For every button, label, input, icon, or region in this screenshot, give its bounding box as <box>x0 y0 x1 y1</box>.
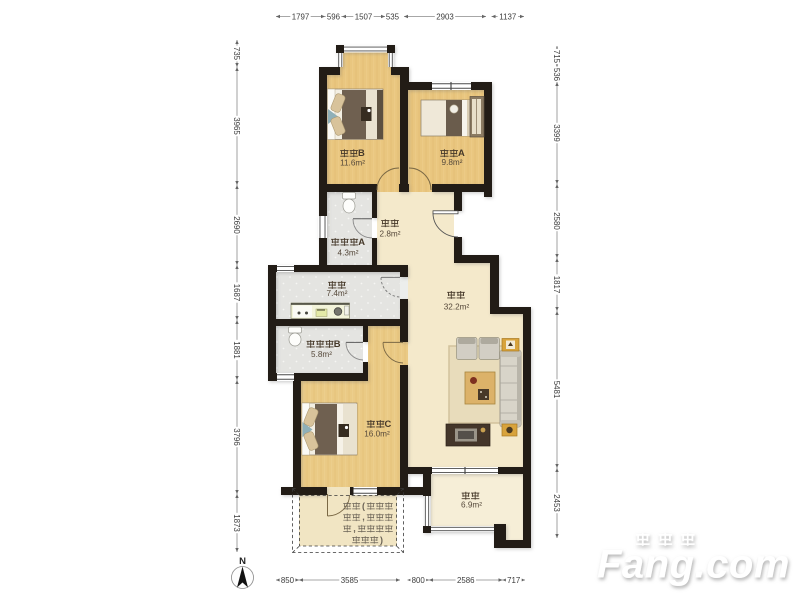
svg-text:7.4m²: 7.4m² <box>327 289 348 298</box>
svg-text:3965: 3965 <box>232 117 241 135</box>
svg-text:735: 735 <box>232 47 241 61</box>
svg-text:2903: 2903 <box>436 13 454 22</box>
svg-text:3585: 3585 <box>341 576 359 585</box>
svg-text:11.6m²: 11.6m² <box>340 158 365 167</box>
svg-text:1137: 1137 <box>499 13 516 22</box>
svg-text:2453: 2453 <box>552 494 561 512</box>
svg-text:6.9m²: 6.9m² <box>461 500 482 509</box>
svg-text:1797: 1797 <box>292 13 310 22</box>
svg-text:B: B <box>334 338 341 349</box>
svg-text:535: 535 <box>386 13 400 22</box>
svg-text:2.8m²: 2.8m² <box>380 229 401 238</box>
svg-text:3399: 3399 <box>552 124 561 142</box>
svg-text:5.8m²: 5.8m² <box>311 350 332 359</box>
svg-text:A: A <box>358 236 365 247</box>
svg-text:1873: 1873 <box>232 514 241 532</box>
svg-text:536: 536 <box>552 68 561 82</box>
svg-text:): ) <box>380 535 383 545</box>
svg-text:C: C <box>385 418 392 429</box>
svg-text:1881: 1881 <box>232 341 241 359</box>
svg-text:32.2m²: 32.2m² <box>444 302 470 311</box>
svg-text:1507: 1507 <box>355 13 373 22</box>
svg-text:3796: 3796 <box>232 428 241 446</box>
svg-text:5481: 5481 <box>552 381 561 399</box>
svg-text:Fang.com: Fang.com <box>597 543 790 587</box>
svg-text:B: B <box>358 147 365 158</box>
svg-text:9.8m²: 9.8m² <box>442 158 463 167</box>
svg-text:1817: 1817 <box>552 276 561 294</box>
svg-text:715: 715 <box>552 50 561 64</box>
svg-text:(: ( <box>362 501 365 511</box>
svg-text:1687: 1687 <box>232 284 241 302</box>
svg-text:A: A <box>458 147 465 158</box>
svg-text:800: 800 <box>412 576 426 585</box>
svg-text:2586: 2586 <box>457 576 475 585</box>
svg-text:,: , <box>362 512 365 522</box>
svg-text:2690: 2690 <box>232 216 241 234</box>
svg-text:4.3m²: 4.3m² <box>338 248 359 257</box>
svg-text:850: 850 <box>281 576 295 585</box>
svg-text:596: 596 <box>327 13 341 22</box>
svg-text:2580: 2580 <box>552 212 561 230</box>
svg-text:,: , <box>353 523 356 533</box>
svg-text:16.0m²: 16.0m² <box>364 429 390 438</box>
svg-text:N: N <box>239 556 246 567</box>
svg-text:717: 717 <box>507 576 520 585</box>
